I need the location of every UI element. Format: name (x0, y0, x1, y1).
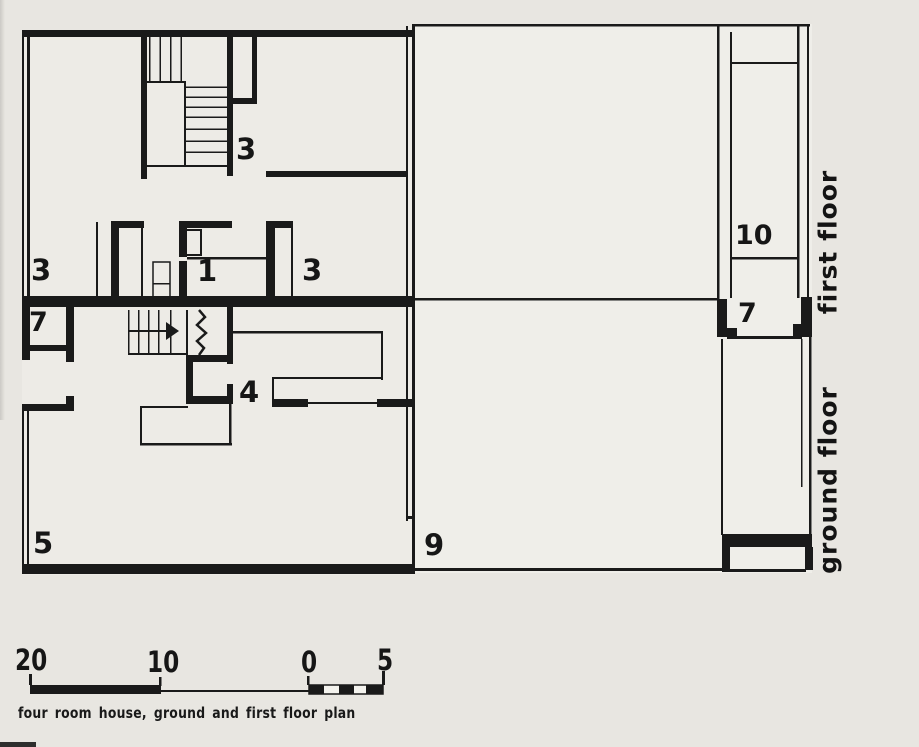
room-label-3-first-floor-top: 3 (236, 135, 256, 164)
first-floor-fixtures (153, 230, 201, 298)
first-floor-title: first floor (814, 170, 843, 314)
floor-divider-wall (22, 296, 415, 307)
room-label-7-ground-left: 7 (29, 309, 48, 336)
room-label-7-ground-porch: 7 (738, 300, 757, 327)
scanned-floor-plan-page: 3 3 1 3 10 7 4 5 9 7 first floor ground … (0, 0, 919, 747)
scale-bar (29, 671, 385, 694)
scale-label-5: 5 (377, 646, 397, 675)
ground-floor-left-block (22, 307, 415, 574)
stair-break-line (197, 310, 206, 355)
room-label-1: 1 (197, 257, 217, 286)
ground-floor-title: ground floor (814, 386, 843, 574)
scale-label-10: 10 (147, 648, 187, 677)
scale-label-0: 0 (301, 648, 321, 677)
scan-blemish (0, 742, 36, 747)
room-label-3-first-floor-right: 3 (302, 256, 322, 285)
room-label-5: 5 (33, 529, 53, 558)
first-floor-left-block (22, 26, 415, 300)
room-label-10-balcony: 10 (735, 222, 773, 249)
scale-label-20: 20 (15, 646, 55, 675)
room-label-3-first-floor-left: 3 (31, 256, 51, 285)
plan-caption: four room house, ground and first floor … (18, 704, 440, 722)
room-label-4: 4 (239, 378, 259, 407)
floor-plan-drawing (0, 0, 919, 747)
room-label-9-terrace: 9 (424, 531, 444, 560)
